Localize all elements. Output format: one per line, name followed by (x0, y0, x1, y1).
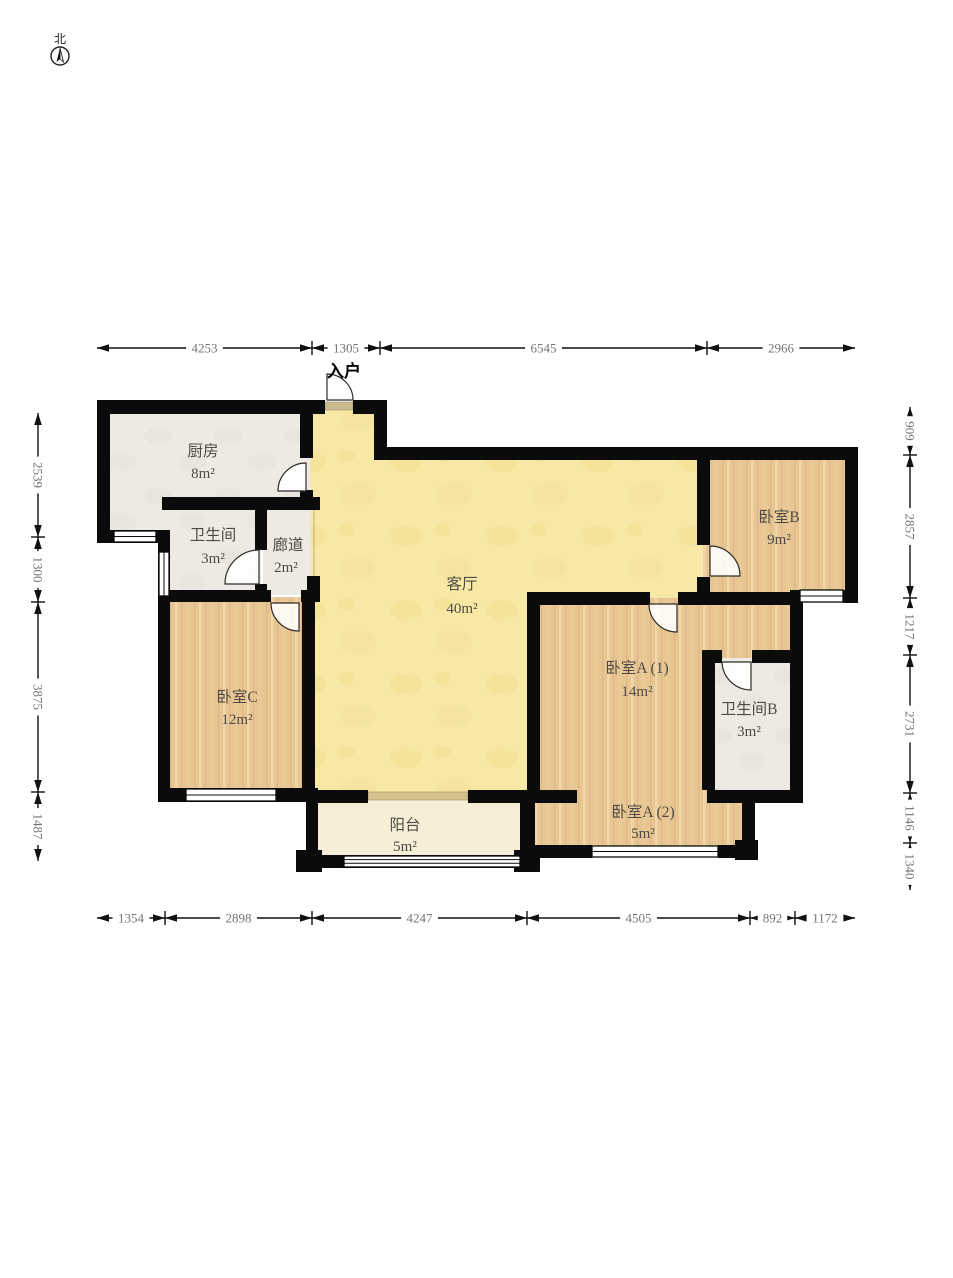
dim-arrow-icon (906, 455, 914, 467)
dim-right: 90928571217273111461340 (902, 407, 918, 890)
entrance-threshold (325, 402, 353, 410)
dim-arrow-icon (843, 914, 855, 922)
balcony-area: 5m² (393, 839, 417, 855)
dim-arrow-icon (97, 344, 109, 352)
dim-arrow-icon (906, 586, 914, 598)
bathroom-a-label: 卫生间 (190, 526, 237, 544)
dim-arrow-icon (906, 781, 914, 793)
dim-arrow-icon (34, 537, 42, 549)
dim-arrow-icon (695, 344, 707, 352)
dim-arrow-icon (527, 914, 539, 922)
dim-label: 1305 (333, 341, 359, 356)
bedroom-b-label: 卧室B (758, 508, 799, 526)
dim-label: 909 (903, 421, 918, 441)
floorplan-svg: 厨房 8m² 卫生间 3m² 廊道 2m² 客厅 40m² 卧室B 9m² 卧室… (0, 0, 953, 1278)
dim-arrow-icon (300, 914, 312, 922)
dim-arrow-icon (34, 413, 42, 425)
bedroom-b-window-icon (800, 590, 843, 602)
bathroom-b-area: 3m² (737, 724, 761, 740)
dim-label: 1354 (118, 911, 145, 926)
dim-arrow-icon (380, 344, 392, 352)
kitchen-area: 8m² (191, 466, 215, 482)
bathroom-a-window-icon (159, 552, 169, 596)
bedroom-a2-label: 卧室A (2) (611, 803, 674, 821)
balcony-label: 阳台 (389, 816, 420, 834)
dim-label: 4505 (626, 911, 652, 926)
dim-label: 4247 (407, 911, 434, 926)
dim-arrow-icon (312, 914, 324, 922)
dim-arrow-icon (795, 914, 807, 922)
north-label: 北 (54, 32, 66, 46)
dim-arrow-icon (34, 849, 42, 861)
dim-label: 2539 (31, 462, 46, 488)
dim-label: 2857 (903, 514, 918, 541)
kitchen-window-icon (114, 531, 156, 542)
dim-arrow-icon (515, 914, 527, 922)
dim-label: 1217 (903, 614, 918, 641)
living-label: 客厅 (446, 575, 477, 593)
balcony-window-icon (344, 856, 520, 867)
dim-arrow-icon (34, 602, 42, 614)
dim-arrow-icon (368, 344, 380, 352)
bedroom-c-window-icon (186, 789, 276, 801)
dim-top: 4253130565452966 (97, 340, 855, 356)
dim-label: 1146 (903, 805, 918, 831)
dim-label: 6545 (531, 341, 557, 356)
dim-bottom: 13542898424745058921172 (97, 910, 855, 926)
dim-arrow-icon (906, 655, 914, 667)
compass-needle-left-icon (57, 48, 61, 62)
bedroom-a2-area: 5m² (631, 826, 655, 842)
kitchen-label: 厨房 (187, 442, 218, 460)
bedroom-c-label: 卧室C (216, 688, 257, 706)
dim-label: 1487 (31, 814, 46, 841)
dim-arrow-icon (153, 914, 165, 922)
bathroom-b-label: 卫生间B (721, 700, 778, 718)
bedroom-a2-window-icon (592, 846, 718, 857)
dim-label: 2731 (903, 711, 918, 737)
dim-label: 892 (763, 911, 783, 926)
dim-arrow-icon (707, 344, 719, 352)
dim-label: 2966 (768, 341, 795, 356)
bedroom-a1-area: 14m² (621, 684, 653, 700)
dim-label: 4253 (192, 341, 218, 356)
dim-left: 2539130038751487 (30, 413, 46, 861)
bedroom-c-area: 12m² (221, 712, 253, 728)
dim-arrow-icon (34, 780, 42, 792)
dim-arrow-icon (300, 344, 312, 352)
compass-needle-right-icon (60, 48, 64, 62)
dim-arrow-icon (165, 914, 177, 922)
dim-arrow-icon (738, 914, 750, 922)
dim-arrow-icon (34, 525, 42, 537)
dim-arrow-icon (843, 344, 855, 352)
balcony-threshold (368, 792, 468, 800)
dim-arrow-icon (34, 792, 42, 804)
north-compass: 北 (51, 32, 69, 65)
dim-arrow-icon (97, 914, 109, 922)
dim-label: 1172 (812, 911, 838, 926)
dim-label: 1340 (903, 854, 918, 880)
dim-label: 1300 (31, 557, 46, 583)
entrance-label: 入户 (327, 361, 361, 381)
dim-label: 2898 (226, 911, 252, 926)
living-area: 40m² (446, 601, 478, 617)
bedroom-a1-label: 卧室A (1) (605, 659, 668, 677)
dim-label: 3875 (31, 684, 46, 710)
bathroom-a-area: 3m² (201, 551, 225, 567)
dim-arrow-icon (34, 590, 42, 602)
corridor-area: 2m² (274, 560, 298, 576)
dim-arrow-icon (312, 344, 324, 352)
corridor-label: 廊道 (272, 536, 303, 554)
bedroom-b-area: 9m² (767, 532, 791, 548)
